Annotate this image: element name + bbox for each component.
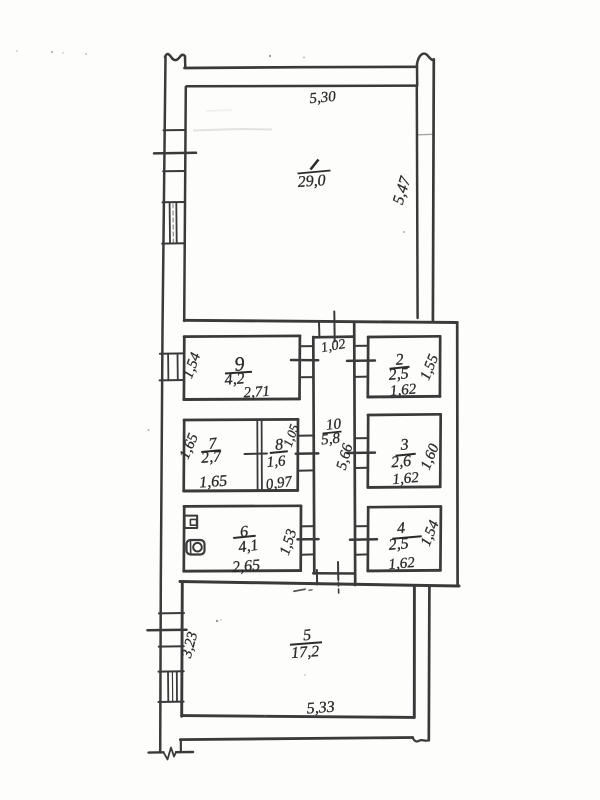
svg-text:5,47: 5,47 [390, 174, 415, 207]
svg-text:1,53: 1,53 [277, 527, 300, 557]
svg-text:2,5: 2,5 [388, 535, 409, 554]
svg-text:29,0: 29,0 [297, 172, 326, 191]
svg-text:2,6: 2,6 [390, 453, 411, 472]
svg-text:2,65: 2,65 [231, 557, 260, 576]
svg-text:2,5: 2,5 [388, 365, 409, 384]
svg-text:17,2: 17,2 [291, 643, 320, 662]
svg-text:2,7: 2,7 [200, 448, 222, 467]
svg-text:3: 3 [399, 436, 409, 454]
svg-text:5,33: 5,33 [306, 699, 335, 718]
svg-text:2,71: 2,71 [243, 384, 270, 402]
svg-text:5: 5 [302, 627, 311, 645]
svg-text:4,1: 4,1 [237, 537, 259, 557]
svg-text:1,55: 1,55 [417, 352, 442, 383]
svg-text:1,6: 1,6 [266, 453, 287, 471]
svg-text:1,62: 1,62 [389, 381, 417, 399]
svg-text:1,62: 1,62 [388, 555, 416, 573]
svg-text:5,8: 5,8 [320, 431, 341, 449]
svg-text:1,02: 1,02 [320, 337, 347, 356]
svg-text:1,65: 1,65 [199, 473, 228, 492]
svg-text:1,54: 1,54 [418, 518, 443, 549]
svg-text:1,62: 1,62 [392, 470, 420, 488]
svg-text:1,65: 1,65 [177, 431, 202, 462]
svg-text:4,2: 4,2 [224, 370, 245, 389]
svg-text:5,30: 5,30 [309, 89, 337, 107]
